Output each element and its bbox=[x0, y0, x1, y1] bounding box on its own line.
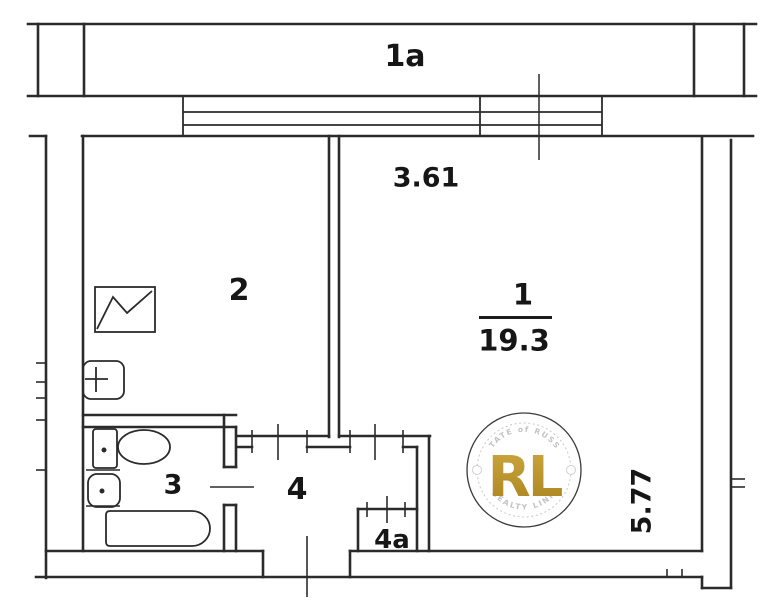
washbasin-icon bbox=[88, 474, 120, 507]
room-label-bathroom: 3 bbox=[164, 472, 183, 499]
room-label-living: 1 bbox=[513, 281, 533, 310]
stamp-left-dot bbox=[473, 466, 482, 475]
room-label-kitchen: 2 bbox=[229, 276, 250, 306]
room-label-closet: 4a bbox=[374, 527, 410, 553]
dimension-top: 3.61 bbox=[393, 165, 460, 192]
balcony-window bbox=[183, 74, 602, 160]
room-area-living: 19.3 bbox=[478, 327, 550, 356]
toilet-icon bbox=[93, 429, 170, 468]
kitchen-sink-icon bbox=[83, 361, 124, 399]
watermark-stamp: ESTATE of RUSSIA REALTY LINK RL bbox=[0, 0, 581, 527]
kitchen-room-partition bbox=[329, 136, 339, 437]
room-label-balcony: 1a bbox=[384, 42, 425, 72]
dimension-right: 5.77 bbox=[629, 468, 656, 535]
door-marks bbox=[210, 424, 405, 597]
fixtures bbox=[83, 287, 210, 546]
bathtub-icon bbox=[106, 511, 210, 546]
stamp-right-dot bbox=[567, 466, 576, 475]
stove-icon bbox=[95, 287, 155, 332]
room-label-hallway: 4 bbox=[287, 475, 308, 505]
floor-plan: ESTATE of RUSSIA REALTY LINK RL 1a 3.61 … bbox=[0, 0, 773, 600]
stamp-monogram: RL bbox=[488, 445, 563, 510]
area-divider-line bbox=[479, 316, 552, 319]
